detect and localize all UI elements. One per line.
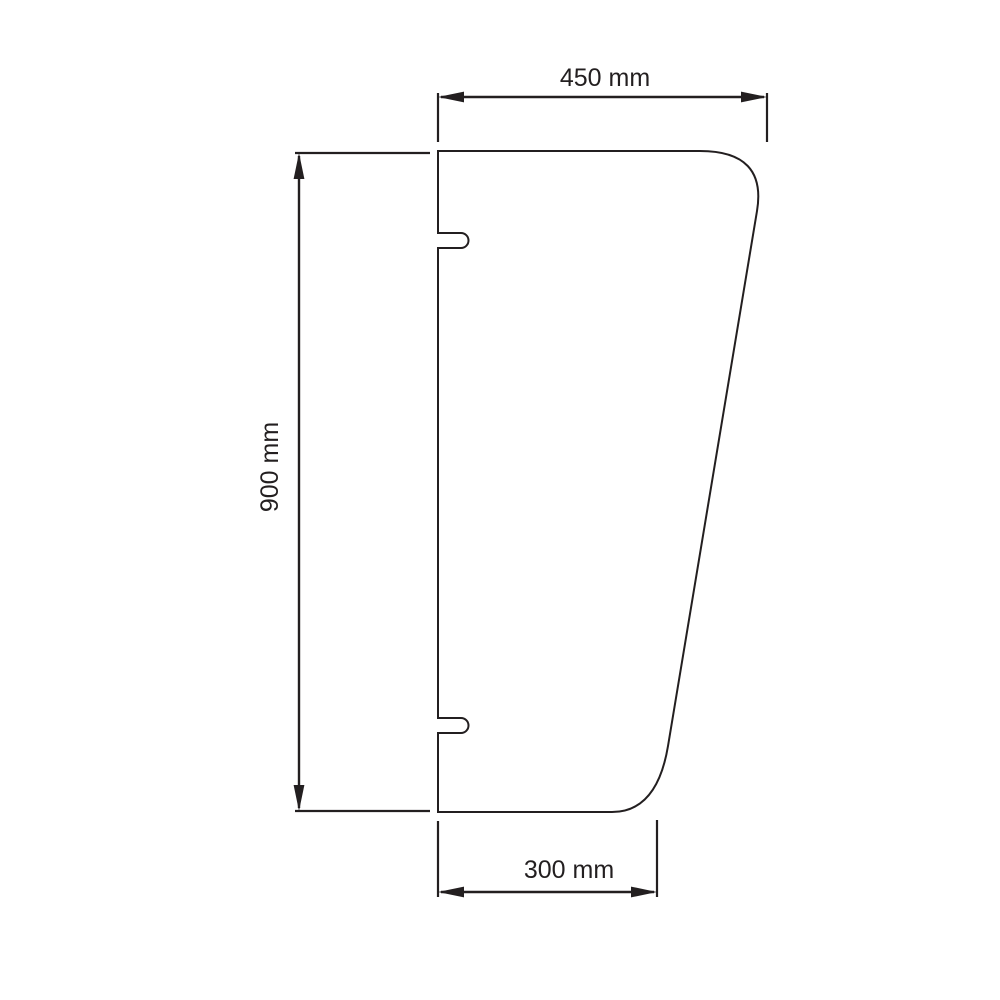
arrowhead-left-icon: [438, 887, 464, 898]
panel-outline: [438, 151, 758, 812]
arrowhead-right-icon: [631, 887, 657, 898]
dimension-height: 900 mm: [256, 153, 430, 811]
arrowhead-up-icon: [294, 153, 305, 179]
dimension-label-top: 450 mm: [560, 64, 650, 92]
dimension-top-width: 450 mm: [438, 64, 767, 142]
arrowhead-left-icon: [438, 92, 464, 103]
dimension-label-height: 900 mm: [256, 422, 284, 512]
dimension-bottom-width: 300 mm: [438, 820, 657, 897]
arrowhead-right-icon: [741, 92, 767, 103]
drawing-canvas: 450 mm 900 mm 300 mm: [0, 0, 1000, 1000]
arrowhead-down-icon: [294, 785, 305, 811]
technical-drawing: 450 mm 900 mm 300 mm: [0, 0, 1000, 1000]
dimension-label-bottom: 300 mm: [524, 856, 614, 884]
